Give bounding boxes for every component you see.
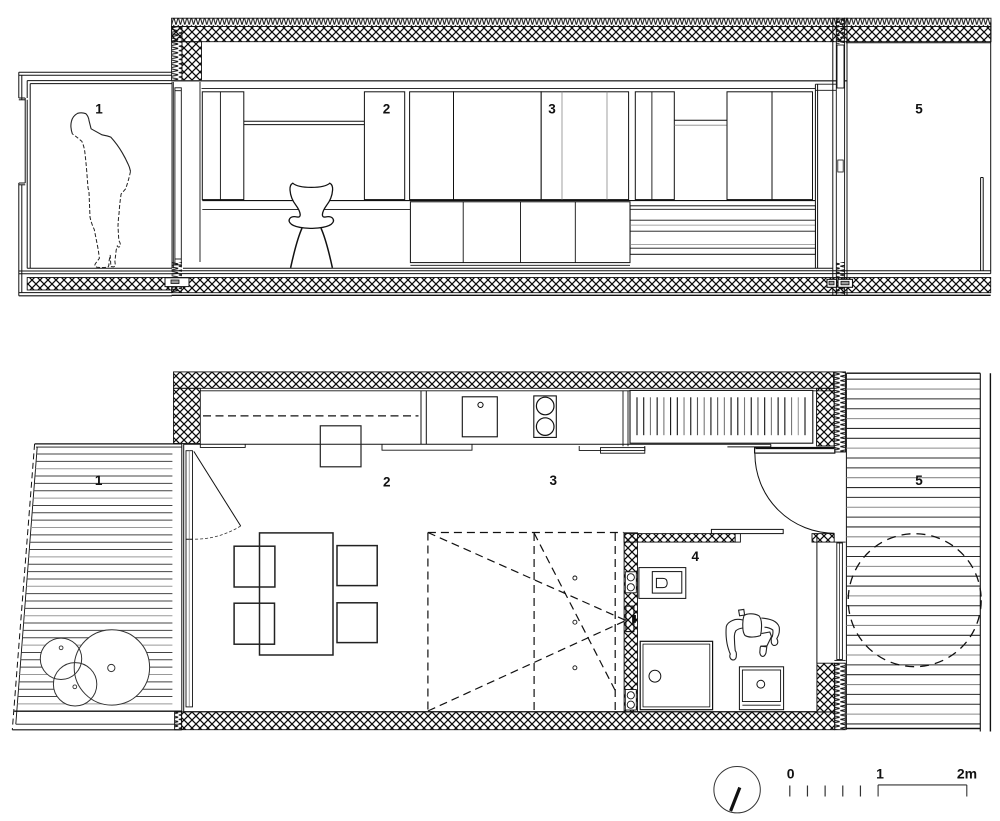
svg-text:2m: 2m bbox=[957, 766, 977, 782]
svg-text:2: 2 bbox=[383, 475, 391, 490]
svg-text:4: 4 bbox=[691, 549, 699, 564]
svg-text:1: 1 bbox=[95, 102, 103, 117]
svg-text:3: 3 bbox=[548, 102, 556, 117]
svg-text:1: 1 bbox=[876, 766, 884, 782]
svg-text:5: 5 bbox=[915, 473, 923, 488]
svg-text:0: 0 bbox=[787, 766, 795, 782]
svg-text:5: 5 bbox=[915, 102, 923, 117]
svg-text:3: 3 bbox=[550, 473, 558, 488]
svg-text:1: 1 bbox=[95, 473, 103, 488]
svg-text:2: 2 bbox=[383, 102, 391, 117]
